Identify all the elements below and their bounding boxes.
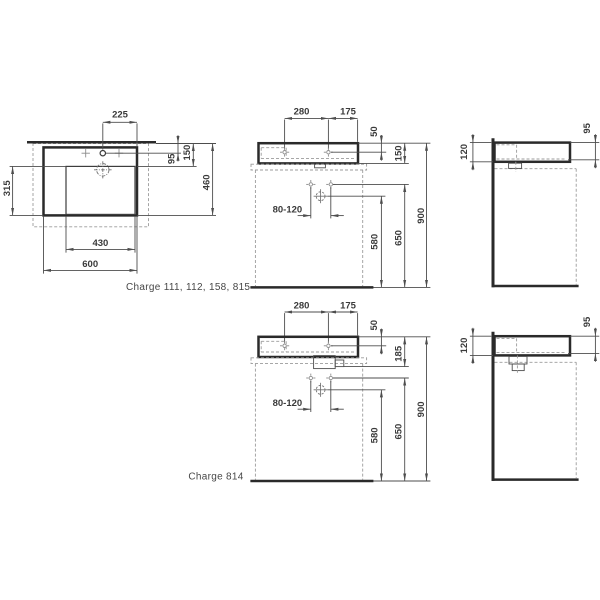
dim-basin-height-b: 185 — [394, 337, 405, 367]
dim-bowl-width: 430 — [66, 217, 135, 253]
technical-drawing-page: 280 175 50 — [0, 0, 600, 600]
dim-label-150-plan: 150 — [182, 145, 193, 161]
dim-label-150-front: 150 — [394, 145, 405, 161]
plan-view: 225 95 150 460 315 430 — [2, 109, 216, 273]
dim-label-600: 600 — [82, 259, 98, 270]
drain-stub-side — [509, 163, 522, 168]
dim-label-460: 460 — [201, 174, 212, 190]
side-view-b-extras — [509, 355, 527, 372]
dim-wall-to-taphole: 95 — [167, 135, 179, 164]
dim-label-225: 225 — [112, 109, 129, 120]
dim-wall-to-bowl: 150 — [182, 144, 193, 167]
dim-label-430: 430 — [92, 238, 108, 249]
caption-group-b: Charge 814 — [188, 471, 243, 482]
side-view-a-extras — [509, 162, 522, 172]
siphon-body-side — [509, 356, 527, 364]
taphole-center — [100, 151, 105, 156]
side-view-a — [459, 122, 600, 287]
dim-label-95-plan: 95 — [167, 153, 178, 164]
front-view-b — [250, 300, 430, 481]
dim-bowl-depth: 315 — [2, 166, 66, 215]
caption-group-a: Charge 111, 112, 158, 815 — [126, 282, 250, 293]
optional-taphole-left — [82, 149, 90, 157]
bowl-inner-outline — [66, 166, 135, 214]
basin-outline-plan — [44, 147, 138, 215]
dim-label-185-front: 185 — [394, 345, 405, 362]
dim-overall-depth: 460 — [201, 144, 212, 216]
washbasin-dimension-drawing: 280 175 50 — [0, 0, 600, 600]
siphon-outlet-side — [512, 364, 524, 371]
dim-label-315: 315 — [2, 180, 13, 197]
dim-basin-height-a: 150 — [394, 143, 405, 163]
front-view-a — [250, 107, 430, 288]
side-view-b — [459, 316, 600, 481]
faucet-symbol — [94, 161, 112, 178]
dim-overall-width: 600 — [44, 217, 138, 274]
